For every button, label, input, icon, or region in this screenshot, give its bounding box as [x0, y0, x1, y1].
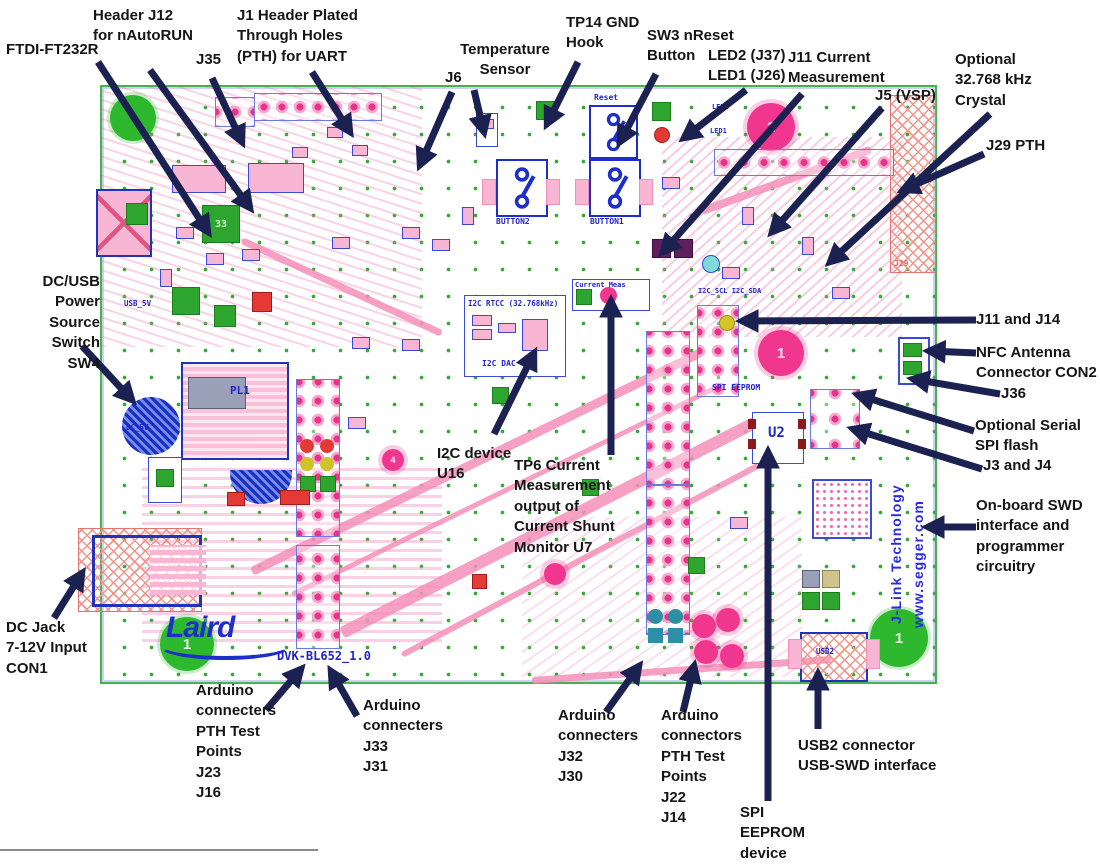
power-pad-red [300, 439, 314, 453]
tp6-test-point [600, 287, 617, 304]
mounting-pad [720, 644, 744, 668]
button-pad [639, 179, 653, 205]
smd-component [402, 227, 420, 239]
u2-silk-label: U2 [768, 425, 785, 441]
label-sw4: DC/USB Power Source Switch SW4 [14, 272, 100, 374]
smd-component [348, 417, 366, 429]
fiducial-mid-right: 1 [758, 330, 804, 376]
dc5v-silk-label: DC_5V [126, 423, 149, 432]
label-nfc: NFC Antenna Connector CON2 [976, 343, 1097, 384]
teal-pad [648, 609, 663, 624]
teal-pad [668, 609, 683, 624]
smd-component [160, 269, 172, 287]
label-j29: J29 PTH [986, 136, 1045, 156]
chip-pad [798, 439, 806, 449]
swd-programmer-chip [812, 479, 872, 539]
pcb-board: J29 1 1 1 1 4 [100, 85, 937, 684]
switch-symbol [591, 107, 636, 157]
arduino-header-j16-j31 [296, 545, 340, 649]
power-pad-red [320, 439, 334, 453]
label-j35: J35 [196, 50, 221, 70]
smd-component [802, 237, 814, 255]
label-j11-j14: J11 and J14 [976, 310, 1060, 330]
via-large [544, 563, 566, 585]
label-j3-j4: J3 and J4 [983, 456, 1051, 476]
chip-pad [798, 419, 806, 429]
usb2-silk-label: USB2 [816, 647, 834, 656]
segger-silk-label: www.segger.com [910, 443, 926, 628]
smd-component [176, 227, 194, 239]
j29-pth-zone [890, 95, 936, 273]
smd-component [402, 339, 420, 351]
smd-component [352, 337, 370, 349]
current-jumper-j6 [652, 239, 671, 258]
teal-pad [668, 628, 683, 643]
usb5v-silk-label: USB_5V [124, 299, 151, 308]
smd-component [492, 387, 509, 404]
button-pad [575, 179, 589, 205]
button2-silk-label: BUTTON2 [496, 217, 530, 226]
label-arduino-j33: Arduino connecters J33 J31 [363, 696, 443, 778]
board-version-label: DVK-BL652_1.0 [277, 649, 371, 663]
page-rule [0, 849, 318, 851]
smd-component [242, 249, 260, 261]
chip-pad [748, 439, 756, 449]
yellow-pad-j14 [719, 315, 735, 331]
j29-silk-label: J29 [894, 259, 908, 268]
led2-silk-label: LED2 [712, 103, 729, 111]
label-crystal: Optional 32.768 kHz Crystal [955, 50, 1032, 111]
sw3-reset-button [589, 105, 638, 159]
label-j1-header: J1 Header Plated Through Holes (PTH) for… [237, 6, 358, 67]
gnd-pad [576, 289, 592, 305]
gnd-pad [320, 476, 336, 492]
label-tp6: TP6 Current Measurement output of Curren… [514, 456, 615, 558]
i2c-rtcc-silk-label: I2C RTCC (32.768kHz) [468, 299, 558, 308]
led2 [652, 102, 671, 121]
j35-header [215, 97, 255, 127]
smd-component [352, 145, 368, 156]
button1-silk-label: BUTTON1 [590, 217, 624, 226]
label-arduino-j22: Arduino connectors PTH Test Points J22 J… [661, 706, 742, 828]
teal-pad [648, 628, 663, 643]
smd-component [480, 119, 494, 129]
button-pad [546, 179, 560, 205]
dc-jack-outline [92, 535, 202, 607]
smd-component [722, 267, 740, 279]
led1 [654, 127, 670, 143]
arduino-header-upper-right [646, 331, 690, 485]
label-j11-current: J11 Current Measurement [788, 48, 885, 89]
smd-component [742, 207, 754, 225]
nfc-contact [903, 343, 922, 357]
button1 [589, 159, 641, 217]
label-usb2: USB2 connector USB-SWD interface [798, 736, 936, 777]
smd-component [432, 239, 450, 251]
label-spi-eeprom: SPI EEPROM device [740, 803, 805, 864]
smd-component [472, 315, 492, 326]
spi-eeprom-silk-label: SPI EEPROM [712, 383, 760, 392]
mounting-pad [716, 608, 740, 632]
gnd-pad [822, 592, 840, 610]
smd-component [292, 147, 308, 158]
smd-component [688, 557, 705, 574]
smd-component [252, 292, 272, 312]
chip-pad [156, 469, 174, 487]
nfc-contact [903, 361, 922, 375]
label-j5-vsp: J5 (VSP) [875, 86, 936, 106]
smd-component [802, 570, 820, 588]
usb2-pad [788, 639, 802, 669]
mounting-pad [694, 640, 718, 664]
chip-pad [748, 419, 756, 429]
smd-component [327, 127, 343, 138]
label-header-j12: Header J12 for nAutoRUN [93, 6, 193, 47]
smd-component [126, 203, 148, 225]
smd-component [227, 492, 245, 506]
j29-header [714, 149, 894, 176]
smd-component [206, 253, 224, 265]
pcb-trace [532, 656, 832, 684]
switch-symbol [498, 161, 546, 215]
current-jumper-j7 [674, 239, 693, 258]
label-arduino-j32: Arduino connecters J32 J30 [558, 706, 638, 788]
label-ftdi: FTDI-FT232R [6, 40, 99, 60]
gnd-pad [802, 592, 820, 610]
label-j36: J36 [1001, 384, 1026, 404]
button-pad [482, 179, 496, 205]
smd-component [730, 517, 748, 529]
smd-component [472, 329, 492, 340]
laird-logo-swoosh [158, 631, 292, 660]
jlink-silk-label: J-Link Technology [888, 439, 904, 624]
tp14-gnd-hook [536, 101, 555, 120]
smd-component [172, 287, 200, 315]
fiducial-top-right: 1 [747, 103, 795, 151]
label-j6: J6 [445, 68, 462, 88]
smd-component [472, 574, 487, 589]
label-leds: LED2 (J37) LED1 (J26) [708, 46, 786, 87]
smd-component [280, 490, 310, 505]
current-meas-silk-label: Current Meas [575, 281, 626, 289]
label-dc-jack: DC Jack 7-12V Input CON1 [6, 618, 87, 679]
label-arduino-j23: Arduino connecters PTH Test Points J23 J… [196, 681, 276, 803]
switch-symbol [591, 161, 639, 215]
test-pad-cyan [702, 255, 720, 273]
usb2-connector [800, 632, 868, 682]
ftdi-ft232r-chip: 33 [202, 205, 240, 243]
label-swd: On-board SWD interface and programmer ci… [976, 496, 1083, 578]
led1-silk-label: LED1 [710, 127, 727, 135]
i2c-device-u16-chip [522, 319, 548, 351]
smd-component [822, 570, 840, 588]
label-spi-flash: Optional Serial SPI flash [975, 416, 1081, 457]
smd-component [462, 207, 474, 225]
smd-component [332, 237, 350, 249]
usb2-pad [866, 639, 880, 669]
i2c-pins-silk-label: I2C_SCL I2C_SDA [698, 287, 761, 295]
power-pad-5v [300, 457, 314, 471]
pl1-silk-label: PL1 [230, 384, 250, 397]
via-large: 4 [382, 449, 404, 471]
figure-canvas: J29 1 1 1 1 4 [0, 0, 1100, 868]
i2c-dac-silk-label: I2C DAC [482, 359, 516, 368]
power-pad-5v [320, 457, 334, 471]
smd-component [832, 287, 850, 299]
label-tp14: TP14 GND Hook [566, 13, 639, 54]
reset-silk-label: Reset [594, 93, 618, 102]
smd-component [662, 177, 680, 189]
j1-uart-header [254, 93, 382, 121]
smd-component [498, 323, 516, 333]
button2 [496, 159, 548, 217]
j22-header-right [810, 389, 860, 449]
smd-component [214, 305, 236, 327]
pcb-trace [241, 237, 443, 336]
label-temp-sensor: Temperature Sensor [452, 40, 558, 81]
smd-component [172, 165, 226, 193]
smd-component [248, 163, 304, 193]
fiducial-top-left [110, 95, 156, 141]
mounting-pad [692, 614, 716, 638]
label-i2c-u16: I2C device U16 [437, 444, 511, 485]
